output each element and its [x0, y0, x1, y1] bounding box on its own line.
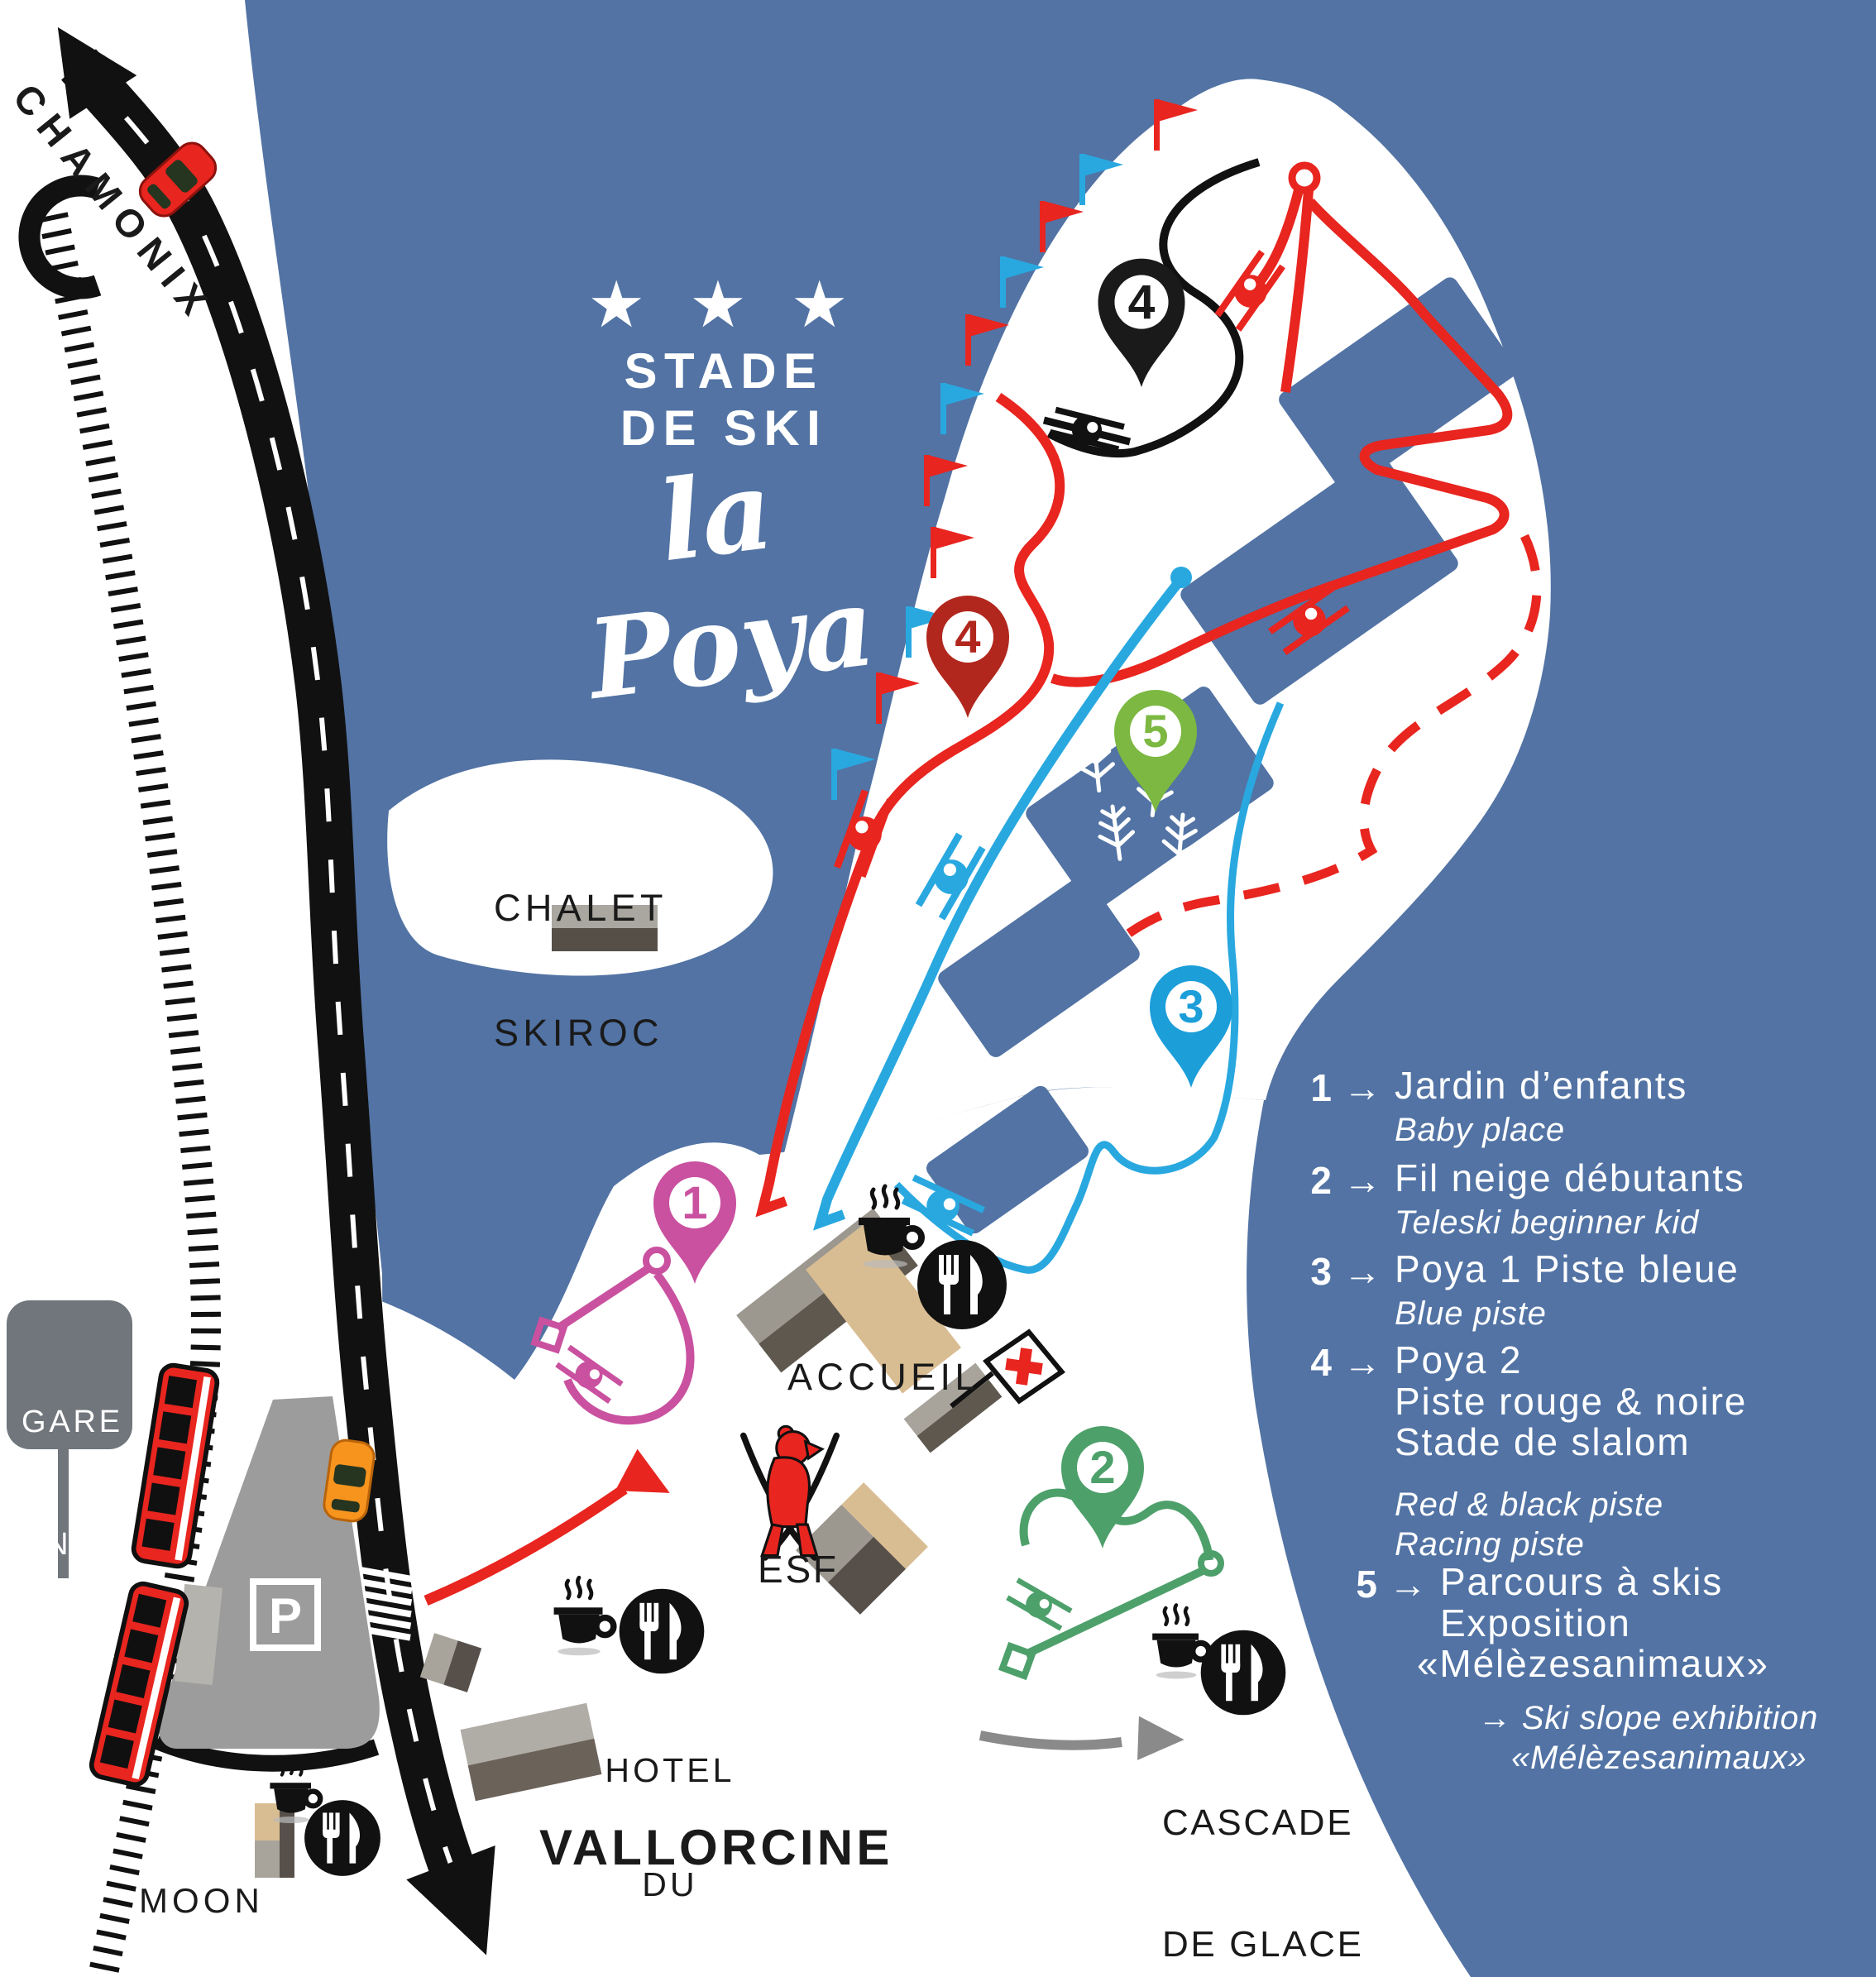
label-esf: ESF — [758, 1549, 839, 1592]
flag-blue-icon — [831, 749, 875, 800]
arrow-icon: → — [1343, 1158, 1381, 1203]
legend-number: 4 — [1292, 1340, 1332, 1385]
legend-item-2: 2 → Fil neige débutants Teleski beginner… — [1292, 1158, 1745, 1242]
restaurant-icon — [620, 1589, 705, 1674]
legend-number: 5 — [1338, 1562, 1377, 1606]
arrow-icon: → — [1343, 1065, 1381, 1110]
stars-icon: ★ ★ ★ — [546, 273, 902, 337]
label-chalet-skiroc: CHALET SKIROC — [494, 804, 668, 1096]
legend-item-1: 1 → Jardin d’enfants Baby place — [1292, 1065, 1687, 1150]
ski-map: P — [0, 0, 1876, 1977]
legend-number: 3 — [1292, 1249, 1332, 1294]
restaurant-icon — [1201, 1630, 1286, 1716]
resort-title: ★ ★ ★ STADE DE SKI la Poya — [546, 273, 902, 708]
parking-sign-label: P — [269, 1588, 302, 1644]
title-script: la Poya — [532, 431, 916, 729]
label-cascade-de-glace: CASCADE DE GLACE — [1162, 1721, 1364, 1977]
label-moon-tine: MOON TINE — [139, 1803, 255, 1977]
marker-number: 5 — [1142, 705, 1168, 757]
legend-item-4: 4 → Poya 2 Piste rouge & noire Stade de … — [1292, 1340, 1747, 1564]
label-accueil: ACCUEIL — [787, 1357, 980, 1398]
restaurant-icon — [917, 1240, 1007, 1329]
marker-number: 4 — [1128, 275, 1156, 329]
gare-sncf-sign-label: GARE SNCF BUET — [22, 1320, 123, 1729]
arrow-icon: → — [1343, 1249, 1381, 1294]
legend-item-3: 3 → Poya 1 Piste bleue Blue piste — [1292, 1249, 1740, 1333]
restaurant-icon — [304, 1800, 380, 1876]
marker-number: 1 — [682, 1176, 707, 1228]
legend-item-5: 5 → Parcours à skis Exposition «Mélèzesa… — [1338, 1562, 1818, 1778]
legend-number: 1 — [1292, 1065, 1332, 1110]
arrow-icon: → — [1343, 1340, 1381, 1385]
moontine-building — [255, 1803, 294, 1878]
legend-number: 2 — [1292, 1158, 1332, 1203]
title-line1: STADE — [546, 342, 902, 400]
marker-number: 3 — [1178, 980, 1204, 1032]
marker-number: 2 — [1089, 1441, 1115, 1493]
marker-number: 4 — [955, 610, 980, 663]
arrow-icon: → — [1389, 1562, 1427, 1606]
label-vallorcine: VALLORCINE — [539, 1820, 893, 1875]
